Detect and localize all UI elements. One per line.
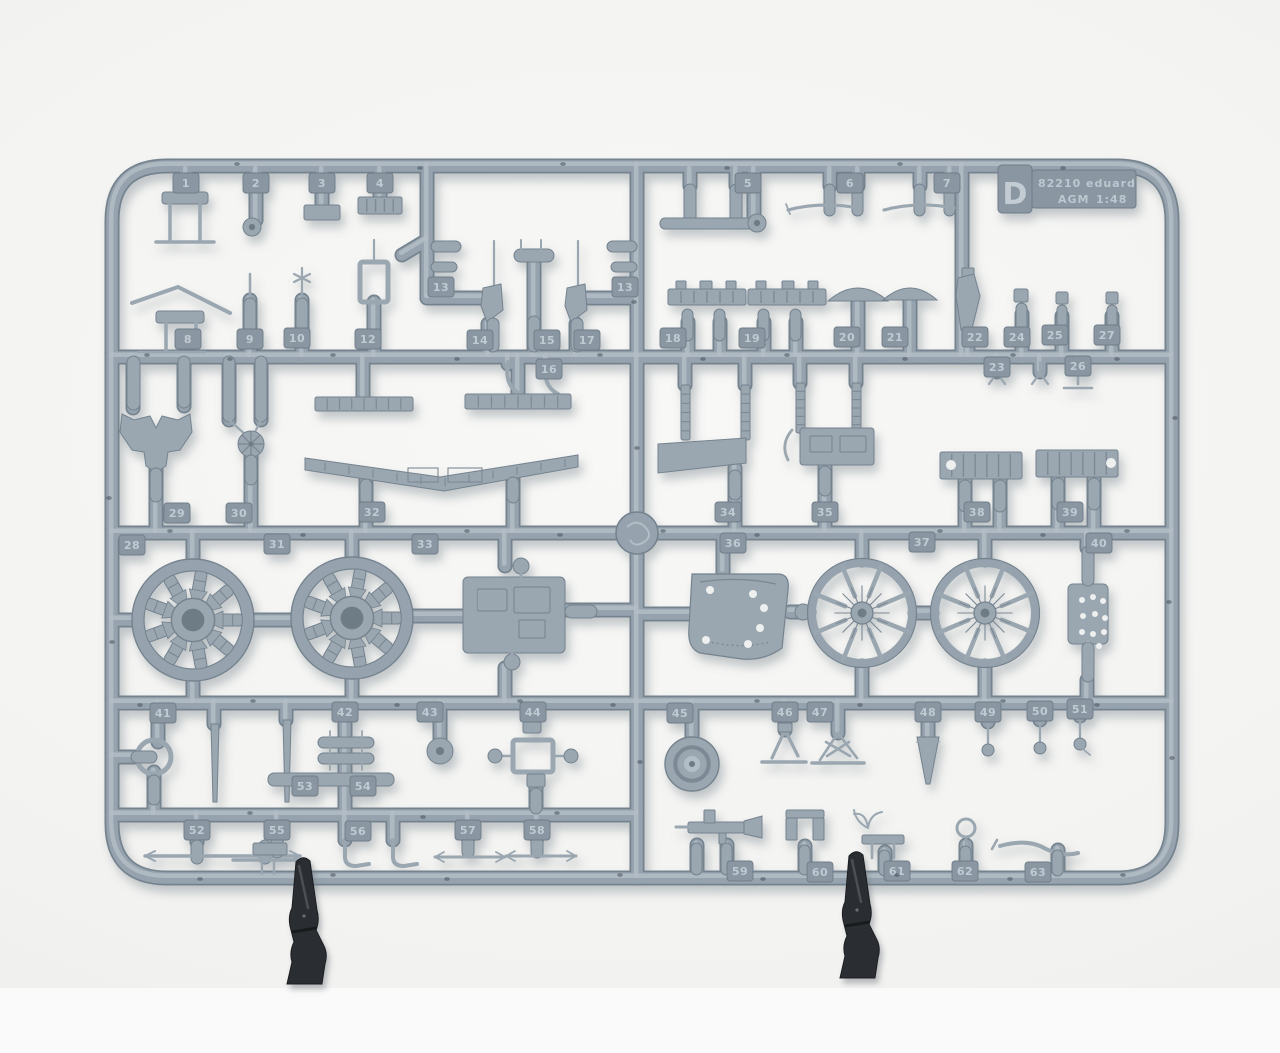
sink-mark — [784, 353, 790, 357]
part-number-tag: 24 — [1004, 327, 1030, 347]
part-number-tag: 30 — [226, 503, 252, 523]
part-shape — [1080, 613, 1086, 619]
part-number: 15 — [539, 334, 555, 347]
part-number-tag: 29 — [164, 503, 190, 523]
sink-mark — [1060, 166, 1066, 170]
part-shape — [294, 268, 310, 298]
part-number: 6 — [846, 177, 854, 190]
part-number: 18 — [665, 332, 681, 345]
part-number: 21 — [887, 331, 903, 344]
part-shape — [744, 640, 752, 648]
part-shape — [514, 249, 554, 262]
sink-mark — [1094, 703, 1100, 707]
sink-mark — [417, 166, 423, 170]
part-number: 19 — [744, 332, 760, 345]
part-shape — [131, 751, 157, 763]
kit-number: 82210 — [1038, 177, 1081, 190]
part-number: 8 — [184, 333, 192, 346]
part-number-tag: 16 — [536, 359, 562, 379]
part-shape — [127, 356, 140, 410]
part-shape — [513, 558, 529, 574]
sink-mark — [1169, 756, 1175, 760]
part-number: 51 — [1072, 703, 1088, 716]
part-shape — [358, 197, 402, 214]
part-shape — [1102, 615, 1108, 621]
part-shape — [223, 356, 235, 422]
part-shape — [726, 281, 736, 289]
part-number: 26 — [1070, 360, 1086, 373]
part-number: 2 — [252, 177, 260, 190]
sink-mark — [1172, 416, 1178, 420]
sink-mark — [420, 815, 426, 819]
sink-mark — [557, 533, 563, 537]
sink-mark — [554, 811, 560, 815]
part-shape — [607, 241, 637, 252]
part-number-tag: 48 — [915, 702, 941, 722]
part-shape — [1090, 594, 1096, 600]
part-shape — [565, 284, 587, 322]
part-number-tag: 54 — [350, 776, 376, 796]
sink-mark — [610, 703, 616, 707]
part-shape — [1079, 597, 1085, 603]
part-number-tag: 55 — [264, 820, 290, 840]
part-number-tag: 5 — [735, 173, 761, 193]
part-number-tag: 33 — [412, 534, 438, 554]
part-number-tag: 19 — [739, 328, 765, 348]
part-shape — [305, 455, 578, 491]
part-shape — [691, 843, 702, 875]
part-shape — [660, 218, 756, 229]
part-number: 28 — [124, 539, 140, 552]
part-shape — [150, 468, 162, 502]
part-number: 53 — [297, 780, 313, 793]
part-number-tag: 27 — [1094, 325, 1120, 345]
part-shape — [994, 480, 1006, 512]
part-shape — [253, 843, 287, 855]
part-shape — [488, 749, 502, 763]
part-number: 46 — [777, 706, 793, 719]
sink-mark — [247, 811, 253, 815]
part-number: 1 — [182, 177, 190, 190]
part-shape — [341, 607, 364, 630]
part-shape — [1092, 611, 1098, 617]
part-shape — [790, 309, 801, 341]
part-shape — [992, 840, 997, 849]
sink-mark — [1040, 533, 1046, 537]
part-shape — [1056, 292, 1068, 304]
part-shape — [744, 816, 762, 838]
sink-mark — [724, 166, 730, 170]
sink-mark — [167, 529, 173, 533]
part-shape — [862, 835, 904, 844]
part-number: 45 — [672, 707, 688, 720]
part-shape — [689, 761, 695, 767]
part-shape — [982, 744, 994, 756]
part-shape — [917, 737, 939, 784]
part-number-tag: 28 — [119, 535, 145, 555]
part-number: 25 — [1047, 329, 1063, 342]
part-shape — [754, 220, 760, 226]
part-shape — [729, 470, 741, 500]
part-number-tag: 51 — [1067, 699, 1093, 719]
part-number: 56 — [350, 825, 366, 838]
part-number-tag: 53 — [292, 776, 318, 796]
sink-mark — [300, 533, 306, 537]
part-shape — [854, 810, 882, 828]
part-number: 63 — [1030, 866, 1046, 879]
sprue-photo-canvas: 1234567131389101214151716181920212224252… — [0, 0, 1280, 1053]
part-number-tag: 13 — [428, 277, 454, 297]
part-shape — [156, 204, 214, 242]
part-number-tag: 40 — [1086, 533, 1112, 553]
part-number: 57 — [460, 824, 476, 837]
part-shape — [132, 287, 230, 313]
part-number: 58 — [529, 824, 545, 837]
part-shape — [514, 587, 550, 613]
part-shape — [431, 262, 457, 272]
part-number-tag: 4 — [367, 173, 393, 193]
part-shape — [1090, 631, 1096, 637]
part-shape — [182, 609, 205, 632]
part-number-tag: 17 — [574, 330, 600, 350]
part-shape — [431, 241, 461, 252]
part-shape — [1000, 843, 1078, 855]
part-number-tag: 43 — [417, 702, 443, 722]
part-number: 20 — [839, 331, 855, 344]
sink-mark — [454, 357, 460, 361]
part-number: 43 — [422, 706, 438, 719]
part-number-tag: 18 — [660, 328, 686, 348]
part-shape — [1034, 742, 1046, 754]
part-shape — [162, 192, 208, 204]
part-number: 62 — [957, 865, 973, 878]
part-number-tag: 39 — [1057, 502, 1083, 522]
sink-mark — [1000, 699, 1006, 703]
part-shape — [255, 356, 267, 422]
part-shape — [481, 284, 503, 322]
part-number-tag: 46 — [772, 702, 798, 722]
part-number: 16 — [541, 363, 557, 376]
part-shape — [756, 624, 764, 632]
part-number: 33 — [417, 538, 433, 551]
part-number: 4 — [376, 177, 384, 190]
part-number: 48 — [920, 706, 936, 719]
part-shape — [1082, 642, 1094, 682]
part-number-tag: 44 — [520, 702, 546, 722]
part-number-tag: 62 — [952, 861, 978, 881]
sink-mark — [617, 873, 623, 877]
sink-mark — [700, 357, 706, 361]
part-number: 29 — [169, 507, 185, 520]
part-number: 31 — [269, 538, 285, 551]
part-shape — [304, 205, 340, 220]
part-shape — [436, 747, 444, 755]
part-shape — [914, 184, 925, 216]
part-shape — [840, 436, 866, 452]
sprue-photo: 1234567131389101214151716181920212224252… — [0, 0, 1280, 1053]
part-number: 52 — [189, 824, 205, 837]
part-shape — [611, 262, 637, 272]
part-number-tag: 6 — [837, 173, 863, 193]
part-shape — [785, 430, 792, 460]
sink-mark — [660, 529, 666, 533]
part-shape — [283, 720, 291, 802]
part-shape — [1106, 292, 1118, 304]
sink-mark — [560, 162, 566, 166]
part-number-tag: 7 — [934, 173, 960, 193]
part-number-tag: 20 — [834, 327, 860, 347]
part-number-tag: 58 — [524, 820, 550, 840]
sink-mark — [894, 873, 900, 877]
sink-mark — [1166, 600, 1172, 604]
sink-mark — [634, 446, 640, 450]
part-shape — [519, 620, 545, 638]
part-number: 60 — [812, 866, 828, 879]
sink-mark — [1010, 353, 1016, 357]
part-shape — [828, 288, 888, 301]
part-number: 30 — [231, 507, 247, 520]
sink-mark — [937, 529, 943, 533]
sink-mark — [234, 162, 240, 166]
part-shape — [249, 442, 254, 447]
part-number: 36 — [725, 537, 741, 550]
part-shape — [700, 281, 712, 289]
part-shape — [786, 818, 797, 840]
sink-mark — [1114, 357, 1120, 361]
sink-mark — [897, 162, 903, 166]
part-number-tag: 56 — [345, 821, 371, 841]
part-number: 10 — [289, 332, 305, 345]
part-number-tag: 50 — [1027, 701, 1053, 721]
sink-mark — [109, 640, 115, 644]
part-number: 44 — [525, 706, 541, 719]
part-number: 37 — [914, 536, 930, 549]
part-number: 24 — [1009, 331, 1025, 344]
part-shape — [813, 818, 824, 840]
mold-code: AGM — [1058, 193, 1090, 206]
sink-mark — [631, 300, 637, 304]
part-shape — [676, 281, 686, 289]
part-number: 14 — [472, 334, 488, 347]
part-number-tag: 57 — [455, 820, 481, 840]
sink-mark — [197, 877, 203, 881]
part-shape — [786, 810, 824, 818]
background-table-edge — [0, 988, 1280, 1053]
part-shape — [616, 512, 658, 554]
sprue-label: D 82210 eduard AGM 1:48 — [998, 165, 1136, 213]
part-shape — [120, 414, 192, 472]
part-shape — [360, 479, 372, 505]
scale-marking: 1:48 — [1096, 193, 1127, 206]
part-shape — [808, 281, 818, 289]
part-number-tag: 52 — [184, 820, 210, 840]
sink-mark — [394, 703, 400, 707]
sink-mark — [444, 877, 450, 881]
sink-mark — [857, 703, 863, 707]
part-number: 42 — [337, 706, 353, 719]
part-number-tag: 22 — [962, 327, 988, 347]
part-number-tag: 21 — [882, 327, 908, 347]
part-shape — [191, 840, 203, 864]
part-shape — [523, 722, 541, 733]
part-shape — [318, 737, 374, 748]
part-number-tag: 32 — [359, 502, 385, 522]
part-shape — [1083, 749, 1090, 755]
part-shape — [1014, 289, 1028, 302]
part-number: 35 — [817, 506, 833, 519]
sink-mark — [227, 357, 233, 361]
part-number-tag: 1 — [173, 173, 199, 193]
part-number: 47 — [812, 706, 828, 719]
part-shape — [148, 775, 160, 805]
sink-mark — [144, 353, 150, 357]
part-shape — [1101, 629, 1107, 635]
part-shape — [1074, 738, 1086, 750]
part-shape — [714, 309, 725, 341]
part-number: 7 — [943, 177, 951, 190]
sink-mark — [597, 353, 603, 357]
part-number: 34 — [720, 506, 736, 519]
sink-mark — [754, 533, 760, 537]
sink-mark — [1124, 529, 1130, 533]
part-number: 49 — [980, 706, 996, 719]
part-shape — [858, 609, 867, 618]
part-shape — [883, 288, 937, 300]
part-number: 13 — [617, 281, 633, 294]
sink-mark — [637, 760, 643, 764]
part-shape — [249, 224, 255, 230]
part-number-tag: 49 — [975, 702, 1001, 722]
part-number: 27 — [1099, 329, 1115, 342]
part-number: 12 — [360, 333, 376, 346]
part-shape — [756, 281, 766, 289]
part-shape — [1068, 584, 1108, 644]
sink-mark — [760, 877, 766, 881]
part-number: 54 — [355, 780, 371, 793]
part-number-tag: 26 — [1065, 356, 1091, 376]
sink-mark — [330, 353, 336, 357]
part-number-tag: 38 — [964, 502, 990, 522]
part-number: 22 — [967, 331, 983, 344]
part-number: 17 — [579, 334, 595, 347]
part-number-tag: 2 — [243, 173, 269, 193]
part-number-tag: 31 — [264, 534, 290, 554]
part-number-tag: 60 — [807, 862, 833, 882]
part-shape — [564, 749, 578, 763]
part-shape — [1096, 643, 1102, 649]
part-number-tag: 10 — [284, 328, 310, 348]
part-shape — [565, 605, 597, 618]
part-number: 40 — [1091, 537, 1107, 550]
part-number-tag: 42 — [332, 702, 358, 722]
part-number: 39 — [1062, 506, 1078, 519]
part-number-tag: 25 — [1042, 325, 1068, 345]
sprue-letter: D — [1003, 177, 1028, 212]
part-number: 3 — [318, 177, 326, 190]
part-number-tag: 36 — [720, 533, 746, 553]
part-number: 32 — [364, 506, 380, 519]
part-shape — [527, 774, 545, 787]
part-shape — [318, 753, 374, 764]
sink-mark — [137, 703, 143, 707]
sink-mark — [1120, 873, 1126, 877]
part-number-tag: 13 — [612, 277, 638, 297]
sink-mark — [330, 873, 336, 877]
part-shape — [778, 723, 792, 732]
part-shape — [513, 740, 553, 772]
part-shape — [824, 184, 835, 216]
part-shape — [704, 810, 715, 823]
part-shape — [946, 460, 956, 470]
part-shape — [688, 822, 744, 833]
sink-mark — [250, 699, 256, 703]
part-shape — [1052, 850, 1063, 876]
sink-mark — [464, 529, 470, 533]
part-number-tag: 34 — [715, 502, 741, 522]
part-number-tag: 37 — [909, 532, 935, 552]
part-number: 9 — [246, 333, 254, 346]
part-shape — [819, 466, 831, 496]
part-shape — [1106, 458, 1116, 468]
sink-mark — [517, 699, 523, 703]
brand-name: eduard — [1086, 177, 1136, 190]
part-number: 23 — [989, 361, 1005, 374]
part-shape — [782, 281, 794, 289]
part-shape — [957, 819, 975, 837]
part-number-tag: 12 — [355, 329, 381, 349]
part-number: 59 — [732, 865, 748, 878]
part-shape — [810, 436, 832, 452]
sink-mark — [1007, 877, 1013, 881]
part-shape — [788, 205, 858, 210]
part-number-tag: 14 — [467, 330, 493, 350]
part-shape — [477, 589, 507, 611]
part-shape — [749, 590, 757, 598]
part-number: 38 — [969, 506, 985, 519]
part-shape — [211, 724, 219, 802]
part-number: 5 — [744, 177, 752, 190]
part-shape — [702, 636, 710, 644]
part-number: 13 — [433, 281, 449, 294]
part-number-tag: 9 — [237, 329, 263, 349]
part-shape — [178, 356, 190, 408]
part-shape — [719, 833, 726, 844]
part-shape — [1088, 478, 1100, 510]
part-shape — [689, 574, 789, 659]
sink-mark — [106, 496, 112, 500]
part-shape — [156, 311, 204, 323]
sink-mark — [754, 699, 760, 703]
part-number: 41 — [155, 707, 171, 720]
part-number-tag: 63 — [1025, 862, 1051, 882]
part-shape — [245, 455, 257, 485]
part-shape — [521, 240, 541, 249]
part-number-tag: 45 — [667, 703, 693, 723]
part-number-tag: 61 — [884, 861, 910, 881]
part-number-tag: 47 — [807, 702, 833, 722]
part-shape — [1079, 629, 1085, 635]
part-shape — [507, 477, 519, 503]
part-number: 50 — [1032, 705, 1048, 718]
part-number-tag: 41 — [150, 703, 176, 723]
part-shape — [706, 586, 714, 594]
sprue: 1234567131389101214151716181920212224252… — [106, 162, 1178, 882]
part-shape — [981, 609, 990, 618]
part-number-tag: 23 — [984, 357, 1010, 377]
part-number-tag: 59 — [727, 861, 753, 881]
part-shape — [760, 604, 768, 612]
part-number-tag: 15 — [534, 330, 560, 350]
